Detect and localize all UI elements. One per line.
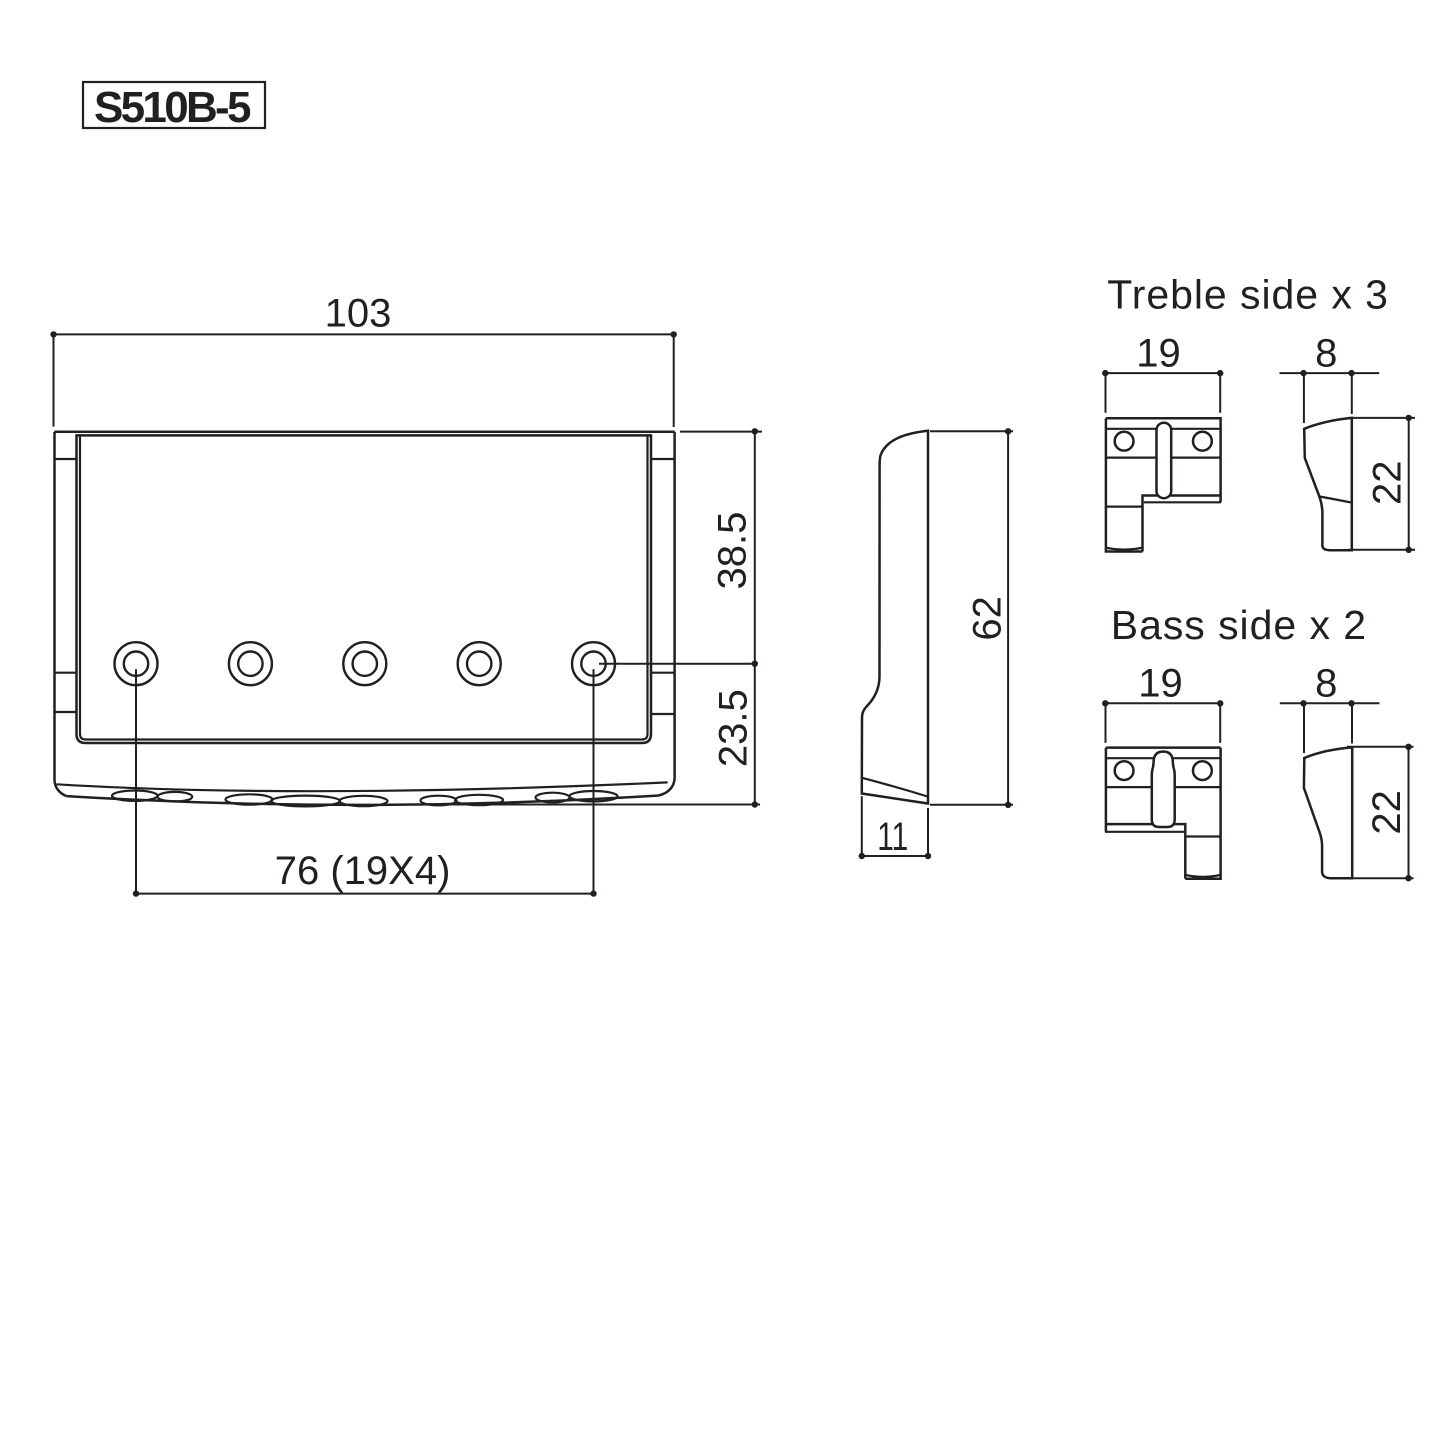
svg-text:S510B-5: S510B-5: [94, 83, 251, 132]
svg-text:19: 19: [1136, 332, 1181, 376]
svg-text:19: 19: [1138, 662, 1183, 706]
svg-text:Bass side x 2: Bass side x 2: [1111, 602, 1367, 648]
svg-text:38.5: 38.5: [711, 512, 755, 590]
svg-text:62: 62: [966, 596, 1010, 641]
svg-text:23.5: 23.5: [712, 689, 756, 767]
svg-text:Treble side x 3: Treble side x 3: [1107, 271, 1389, 317]
svg-text:76 (19X4): 76 (19X4): [275, 849, 451, 893]
svg-text:22: 22: [1365, 460, 1409, 505]
svg-text:22: 22: [1365, 790, 1409, 835]
svg-text:103: 103: [325, 292, 392, 336]
svg-text:8: 8: [1315, 662, 1337, 706]
svg-text:11: 11: [877, 815, 908, 859]
svg-text:8: 8: [1315, 332, 1337, 376]
